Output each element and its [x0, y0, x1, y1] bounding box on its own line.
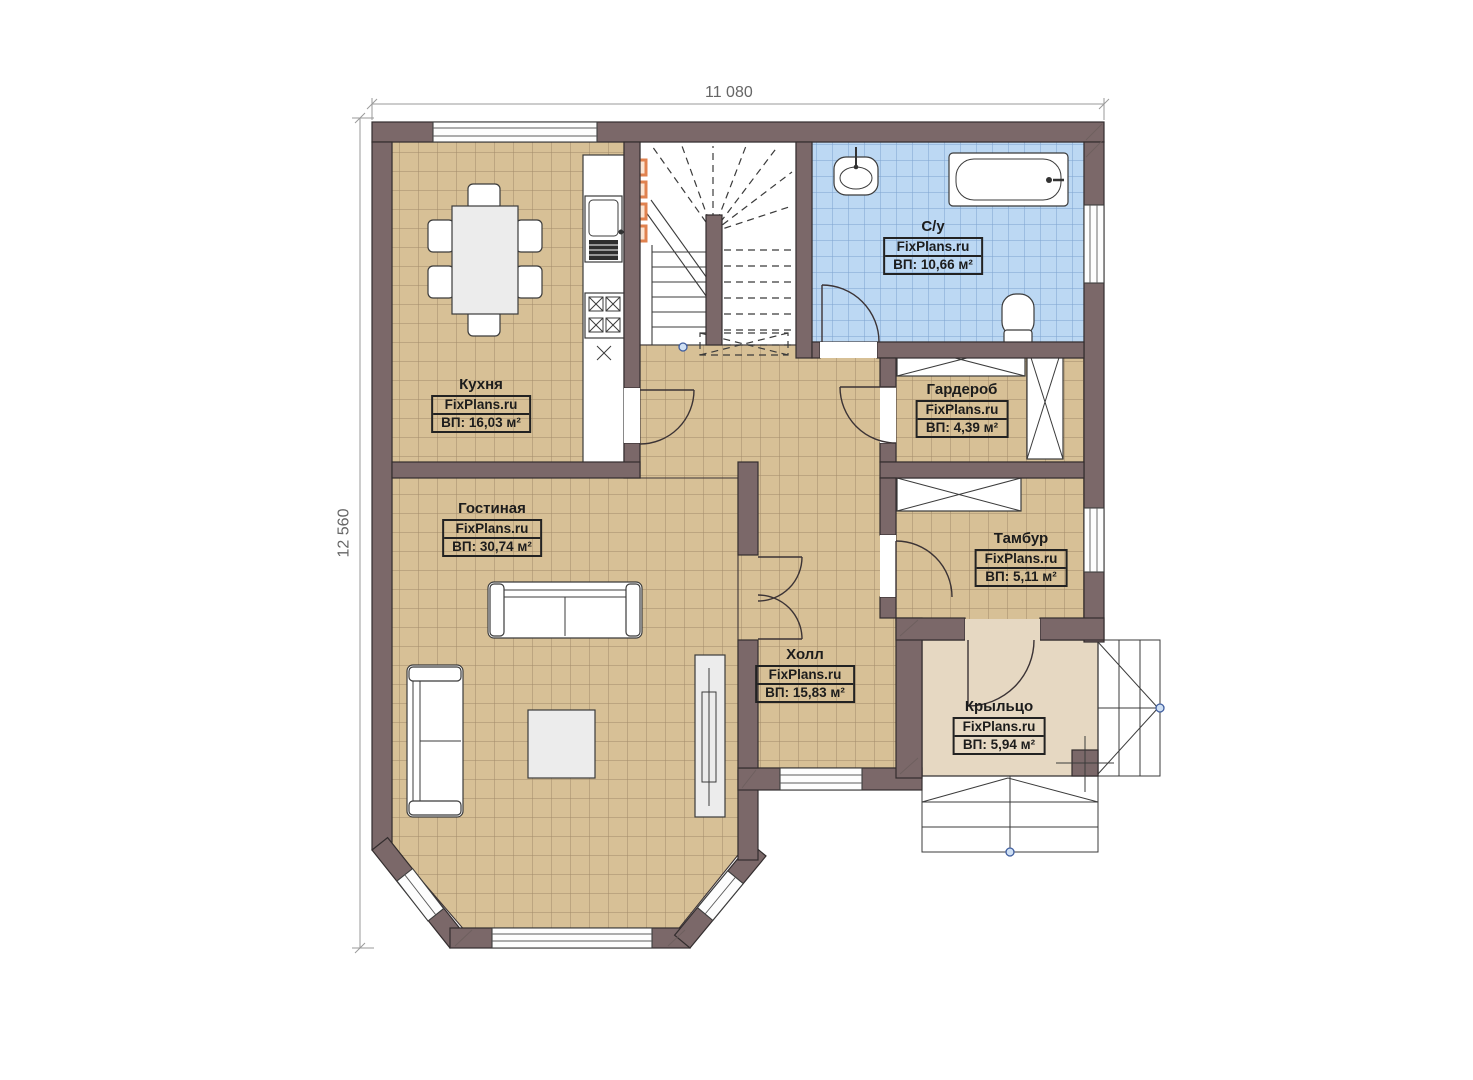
brand-watermark: FixPlans.ru	[977, 551, 1066, 569]
room-area: ВП: 4,39 м²	[918, 420, 1007, 436]
wall-bath-bottom	[877, 342, 1084, 358]
room-info-box: FixPlans.ru ВП: 5,11 м²	[975, 549, 1068, 587]
wall-tambour-left	[880, 478, 896, 535]
bay-window-bottom	[492, 928, 652, 948]
tv-stand	[695, 655, 725, 817]
wall-left	[372, 142, 392, 850]
wall-living-hall	[738, 462, 758, 555]
bathroom-window	[1084, 205, 1104, 283]
room-area: ВП: 30,74 м²	[444, 539, 540, 555]
room-label-living: Гостиная FixPlans.ru ВП: 30,74 м²	[442, 500, 542, 557]
room-info-box: FixPlans.ru ВП: 16,03 м²	[431, 395, 531, 433]
room-label-bathroom: С/у FixPlans.ru ВП: 10,66 м²	[883, 218, 983, 275]
stair-marker-dot	[679, 343, 687, 351]
room-area: ВП: 16,03 м²	[433, 415, 529, 431]
room-info-box: FixPlans.ru ВП: 4,39 м²	[916, 400, 1009, 438]
chair	[428, 266, 454, 298]
room-label-porch: Крыльцо FixPlans.ru ВП: 5,94 м²	[953, 698, 1046, 755]
room-label-hall: Холл FixPlans.ru ВП: 15,83 м²	[755, 646, 855, 703]
floor-plan-drawing	[0, 0, 1473, 1080]
room-info-box: FixPlans.ru ВП: 15,83 м²	[755, 665, 855, 703]
room-info-box: FixPlans.ru ВП: 5,94 м²	[953, 717, 1046, 755]
room-area: ВП: 15,83 м²	[757, 685, 853, 701]
brand-watermark: FixPlans.ru	[918, 402, 1007, 420]
room-label-kitchen: Кухня FixPlans.ru ВП: 16,03 м²	[431, 376, 531, 433]
wall-kitchen-living	[392, 462, 640, 478]
wall-stair-bath	[796, 142, 812, 358]
room-area: ВП: 10,66 м²	[885, 257, 981, 273]
chair	[516, 220, 542, 252]
room-name: Тамбур	[975, 530, 1068, 547]
room-info-box: FixPlans.ru ВП: 30,74 м²	[442, 519, 542, 557]
brand-watermark: FixPlans.ru	[955, 719, 1044, 737]
room-area: ВП: 5,11 м²	[977, 569, 1066, 585]
room-info-box: FixPlans.ru ВП: 10,66 м²	[883, 237, 983, 275]
kitchen-window	[433, 122, 597, 142]
wall-kitchen-right	[624, 142, 640, 388]
chair	[428, 220, 454, 252]
tambour-window	[1084, 508, 1104, 572]
chair	[516, 266, 542, 298]
floor-plan: 11 080 12 560 Кухня FixPlans.ru ВП: 16,0…	[0, 0, 1473, 1080]
stair-spine-wall	[706, 215, 722, 345]
stove	[585, 293, 624, 338]
room-name: Гостиная	[442, 500, 542, 517]
dimension-width: 11 080	[705, 84, 753, 102]
dining-table	[452, 206, 518, 314]
brand-watermark: FixPlans.ru	[444, 521, 540, 539]
room-name: Холл	[755, 646, 855, 663]
room-area: ВП: 5,94 м²	[955, 737, 1044, 753]
wall-wardrobe-tambour	[880, 462, 1084, 478]
room-name: С/у	[883, 218, 983, 235]
room-name: Гардероб	[916, 381, 1009, 398]
dimension-depth: 12 560	[335, 509, 353, 558]
coffee-table	[528, 710, 595, 778]
wall-porch-left	[896, 618, 922, 778]
room-name: Кухня	[431, 376, 531, 393]
room-label-tambour: Тамбур FixPlans.ru ВП: 5,11 м²	[975, 530, 1068, 587]
room-name: Крыльцо	[953, 698, 1046, 715]
hall-window	[780, 768, 862, 790]
wall-wardrobe-left	[880, 358, 896, 387]
brand-watermark: FixPlans.ru	[433, 397, 529, 415]
room-label-wardrobe: Гардероб FixPlans.ru ВП: 4,39 м²	[916, 381, 1009, 438]
brand-watermark: FixPlans.ru	[757, 667, 853, 685]
brand-watermark: FixPlans.ru	[885, 239, 981, 257]
